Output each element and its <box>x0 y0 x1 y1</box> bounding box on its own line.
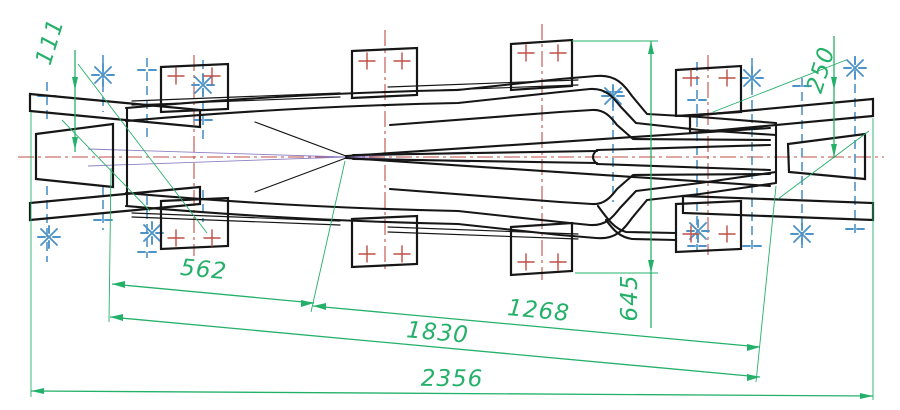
dimension-value-2356: 2356 <box>421 366 484 393</box>
plus-mark <box>168 230 184 246</box>
asterisk-mark <box>741 67 763 89</box>
arrowhead <box>31 388 44 394</box>
dimension-value-562: 562 <box>179 255 228 285</box>
centerlines <box>18 24 884 280</box>
plus-mark <box>550 45 566 61</box>
plus-mark <box>394 246 410 262</box>
throat-line-upper <box>255 122 346 156</box>
extension-line <box>109 168 111 322</box>
right-upper-rail-bar <box>690 99 873 133</box>
arrowhead <box>72 77 78 90</box>
right-lower-rail-bar <box>683 196 873 220</box>
plus-mark <box>168 68 184 84</box>
plus-mark <box>719 226 735 242</box>
bottom-wing-end-bend <box>606 220 676 240</box>
arrowhead <box>860 393 873 399</box>
asterisk-mark <box>687 220 709 242</box>
dimension-value-1268: 1268 <box>506 295 571 327</box>
extension-line <box>311 161 345 312</box>
right-rail-end-block <box>788 134 865 179</box>
plus-mark <box>394 53 410 69</box>
plus-mark <box>359 246 375 262</box>
rail-frog-technical-drawing: 562 1268 1830 2356 645 111 250 <box>0 0 900 410</box>
dimension-value-1830: 1830 <box>405 317 470 349</box>
drawing-sheet: 562 1268 1830 2356 645 111 250 <box>0 0 900 410</box>
asterisk-mark <box>192 74 214 96</box>
dimension-value-645: 645 <box>617 275 643 322</box>
arrowhead <box>72 137 78 150</box>
asterisk-mark <box>92 64 114 86</box>
arrowhead <box>747 374 760 381</box>
arrowhead <box>648 260 654 273</box>
asterisk-mark <box>602 85 624 107</box>
plus-mark <box>518 45 534 61</box>
arrowhead <box>648 41 654 54</box>
throat-line-lower <box>255 158 346 192</box>
dimension-line-562 <box>112 284 314 303</box>
top-wing-rail-inner <box>126 89 776 135</box>
asterisk-mark <box>791 223 813 245</box>
joint-strip <box>132 97 340 105</box>
plus-mark <box>550 254 566 270</box>
arrowhead <box>112 281 125 288</box>
asterisk-mark <box>38 226 60 248</box>
point-rail-lower <box>597 164 770 170</box>
dimension-value-250: 250 <box>802 44 841 96</box>
arrowhead <box>313 303 326 310</box>
dimension-value-111: 111 <box>31 16 70 68</box>
asterisk-mark <box>844 57 866 79</box>
bottom-wing-end-bend <box>598 206 676 233</box>
plus-mark <box>719 70 735 86</box>
plus-mark <box>359 53 375 69</box>
flangeway-lower <box>390 174 770 204</box>
bolt-centerlines <box>47 55 855 262</box>
frog-body <box>126 76 776 240</box>
plus-mark <box>518 254 534 270</box>
asterisk-mark <box>141 222 163 244</box>
arrowhead <box>110 314 123 321</box>
arrowhead <box>747 344 760 351</box>
point-rail-upper <box>597 145 770 150</box>
